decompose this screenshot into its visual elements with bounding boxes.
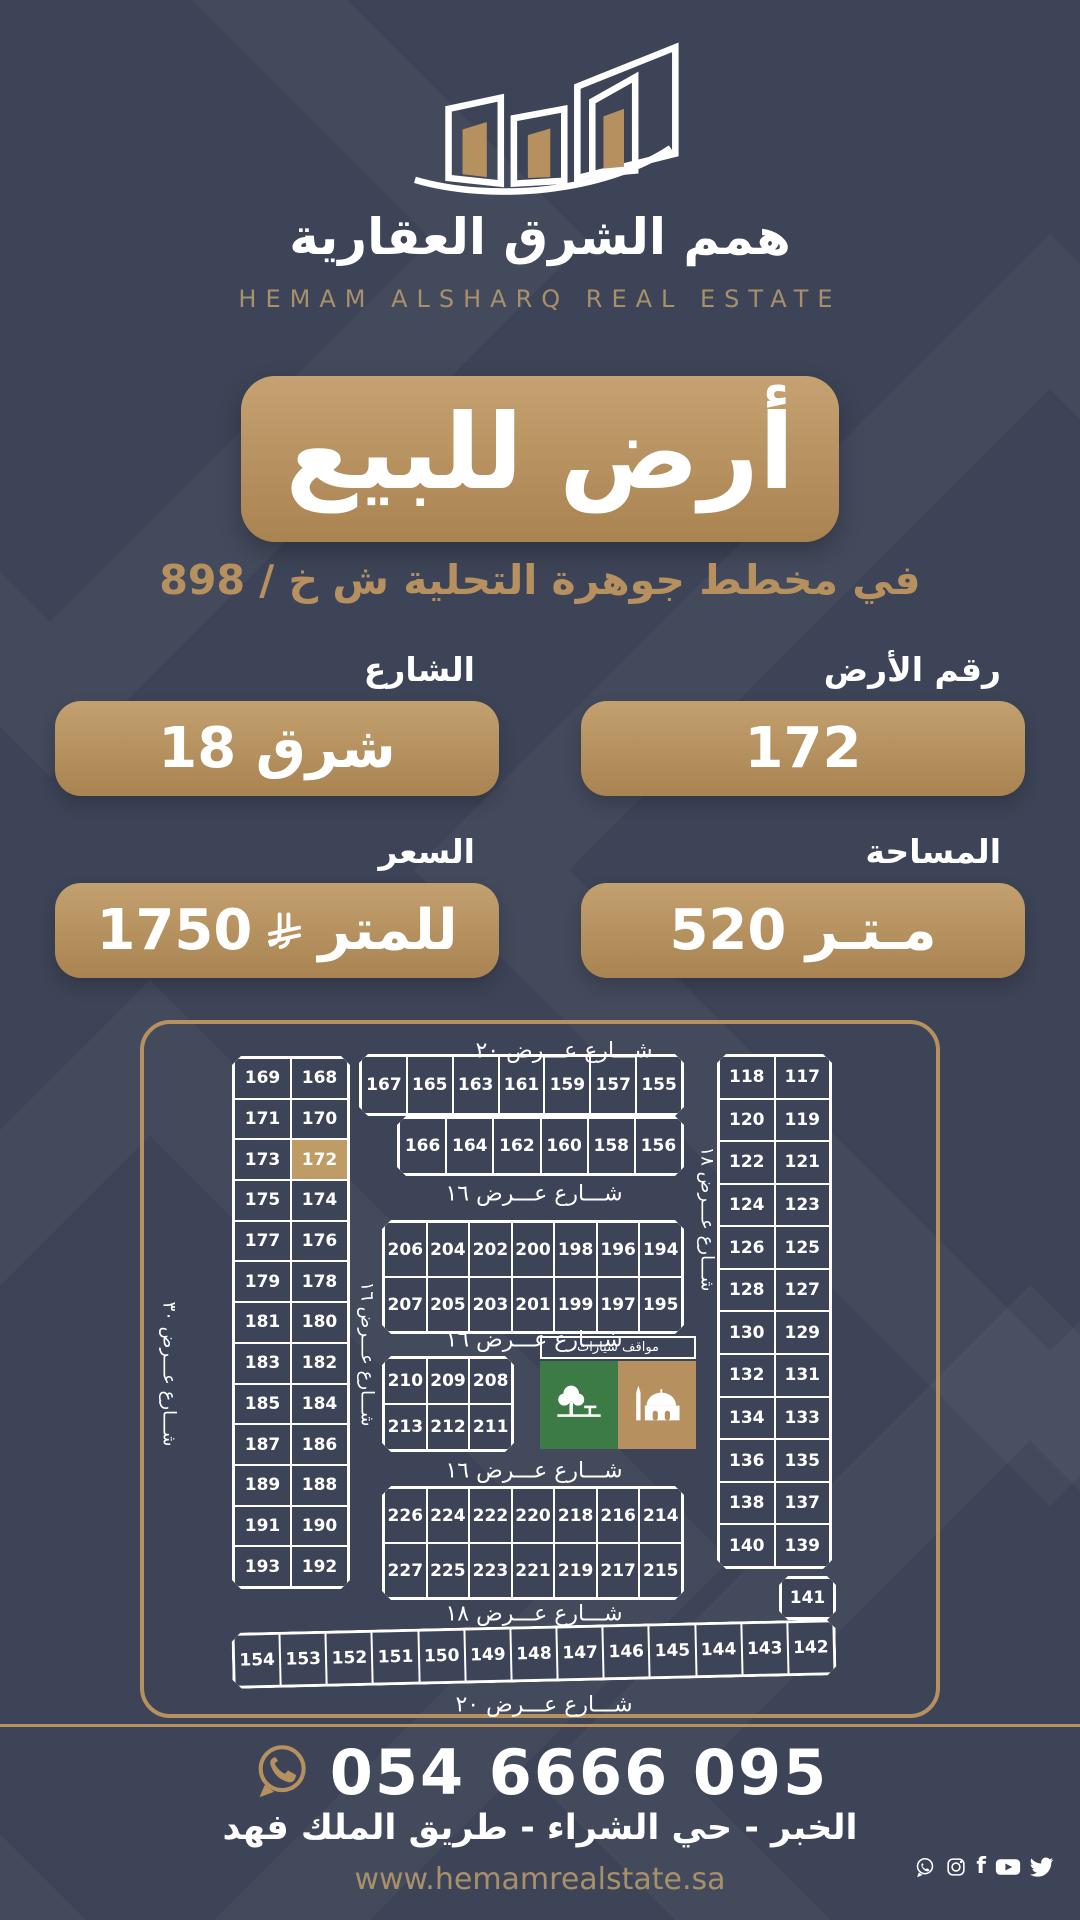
plot-141: 141 [782,1579,833,1617]
area-value: 520 مـتـر [581,883,1025,978]
plot-201: 201 [513,1278,554,1331]
plot-193: 193 [235,1547,290,1586]
plot-map: مواقف سيارات [140,1020,940,1718]
plot-185: 185 [235,1385,290,1424]
mosque-area [618,1361,696,1449]
plot-220: 220 [513,1489,554,1542]
facebook-icon[interactable]: f [976,1856,986,1878]
plot-133: 133 [776,1398,830,1439]
plot-121: 121 [776,1142,830,1183]
plot-200: 200 [513,1223,554,1276]
street-label: الشارع [55,650,499,689]
plot-126: 126 [720,1227,774,1268]
area-label: المساحة [581,832,1025,871]
plot-171: 171 [235,1100,290,1139]
plot-184: 184 [292,1385,347,1424]
plot-176: 176 [292,1222,347,1261]
social-icons: f [914,1856,1054,1878]
plot-187: 187 [235,1425,290,1464]
plot-219: 219 [555,1544,596,1597]
plot-218: 218 [555,1489,596,1542]
plot-173: 173 [235,1140,290,1179]
plot-170: 170 [292,1100,347,1139]
plot-214: 214 [640,1489,681,1542]
block-210s: 210209208213212211 [382,1356,514,1452]
phone-number: 054 6666 095 [330,1736,829,1809]
block-200s-north: 2062042022001981961942072052032011991971… [382,1220,684,1334]
info-fields: رقم الأرض 172 الشارع 18 شرق المساحة 520 … [55,650,1025,978]
field-street: الشارع 18 شرق [55,650,499,796]
plot-147: 147 [557,1627,602,1678]
block-south-row: 154153152151150149148147146145144143142 [231,1619,836,1689]
plot-158: 158 [589,1119,634,1173]
buildings-logo-icon [390,38,690,210]
price-value: 1750 للمتر [55,883,499,978]
plot-154: 154 [235,1635,280,1686]
plot-189: 189 [235,1466,290,1505]
plot-148: 148 [511,1629,556,1680]
plot-174: 174 [292,1181,347,1220]
plot-175: 175 [235,1181,290,1220]
plot-137: 137 [776,1483,830,1524]
gold-divider [0,1724,1080,1727]
plot-192: 192 [292,1547,347,1586]
plot-188: 188 [292,1466,347,1505]
youtube-icon[interactable] [995,1856,1021,1878]
plot-161: 161 [500,1057,544,1113]
plot-167: 167 [362,1057,406,1113]
field-land-number: رقم الأرض 172 [581,650,1025,796]
real-estate-poster: همم الشرق العقارية HEMAM ALSHARQ REAL ES… [0,0,1080,1920]
plot-199: 199 [555,1278,596,1331]
plot-169: 169 [235,1059,290,1098]
plot-134: 134 [720,1398,774,1439]
plot-226: 226 [385,1489,426,1542]
plot-191: 191 [235,1507,290,1546]
plot-144: 144 [696,1624,741,1675]
plot-138: 138 [720,1483,774,1524]
plot-164: 164 [447,1119,492,1173]
plot-162: 162 [494,1119,539,1173]
plan-subtitle: في مخطط جوهرة التحلية ش خ / 898 [0,556,1080,604]
block-top-row-b: 166164162160158156 [397,1116,684,1176]
plot-207: 207 [385,1278,426,1331]
plot-221: 221 [513,1544,554,1597]
for-sale-title: أرض للبيع [285,400,794,518]
plot-210: 210 [385,1359,426,1403]
plot-213: 213 [385,1405,426,1449]
plot-145: 145 [650,1625,695,1676]
phone-row[interactable]: 054 6666 095 [0,1736,1080,1809]
plot-215: 215 [640,1544,681,1597]
brand-name-arabic: همم الشرق العقارية [0,208,1080,266]
plot-153: 153 [281,1634,326,1685]
tree-icon [553,1381,605,1429]
plot-122: 122 [720,1142,774,1183]
plot-135: 135 [776,1440,830,1481]
saudi-riyal-symbol-icon [268,911,302,951]
plot-198: 198 [555,1223,596,1276]
street-width-label: شـــارع عـــرض ٣٠ [159,1302,180,1447]
plot-180: 180 [292,1303,347,1342]
street-width-label: شـــارع عـــرض ١٨ [445,1602,622,1627]
plot-212: 212 [428,1405,469,1449]
plot-165: 165 [408,1057,452,1113]
plot-194: 194 [640,1223,681,1276]
plot-196: 196 [598,1223,639,1276]
plot-179: 179 [235,1262,290,1301]
whatsapp-icon [252,1742,310,1804]
plot-163: 163 [454,1057,498,1113]
plot-202: 202 [470,1223,511,1276]
block-right-column: 1181171201191221211241231261251281271301… [717,1054,832,1569]
plot-127: 127 [776,1270,830,1311]
block-141: 141 [779,1576,836,1620]
plot-197: 197 [598,1278,639,1331]
plot-120: 120 [720,1100,774,1141]
for-sale-banner: أرض للبيع [241,376,839,542]
plot-131: 131 [776,1355,830,1396]
plot-155: 155 [637,1057,681,1113]
field-price: السعر 1750 [55,832,499,978]
plot-216: 216 [598,1489,639,1542]
street-width-label: شـــارع عـــرض ٢٠ [455,1693,632,1718]
land-number-label: رقم الأرض [581,650,1025,689]
plot-227: 227 [385,1544,426,1597]
plot-142: 142 [788,1622,833,1673]
land-number-value: 172 [581,701,1025,796]
field-area: المساحة 520 مـتـر [581,832,1025,978]
plot-151: 151 [373,1632,418,1683]
plot-183: 183 [235,1344,290,1383]
plot-146: 146 [604,1626,649,1677]
plot-195: 195 [640,1278,681,1331]
plot-208: 208 [470,1359,511,1403]
plot-119: 119 [776,1100,830,1141]
plot-118: 118 [720,1057,774,1098]
price-label: السعر [55,832,499,871]
plot-209: 209 [428,1359,469,1403]
park-area [540,1361,618,1449]
plot-132: 132 [720,1355,774,1396]
plot-124: 124 [720,1185,774,1226]
mosque-icon [631,1381,683,1429]
whatsapp-social-icon[interactable] [914,1856,936,1878]
plot-203: 203 [470,1278,511,1331]
plot-204: 204 [428,1223,469,1276]
plot-225: 225 [428,1544,469,1597]
address-line: الخبر - حي الشراء - طريق الملك فهد [0,1808,1080,1848]
plot-160: 160 [542,1119,587,1173]
plot-205: 205 [428,1278,469,1331]
plot-223: 223 [470,1544,511,1597]
plot-159: 159 [545,1057,589,1113]
plot-117: 117 [776,1057,830,1098]
plot-168: 168 [292,1059,347,1098]
plot-156: 156 [636,1119,681,1173]
plot-map-canvas: مواقف سيارات [144,1024,936,1714]
plot-217: 217 [598,1544,639,1597]
plot-123: 123 [776,1185,830,1226]
plot-182: 182 [292,1344,347,1383]
street-width-label: شـــارع عـــرض ٢٠ [475,1039,652,1064]
plot-211: 211 [470,1405,511,1449]
plot-177: 177 [235,1222,290,1261]
plot-166: 166 [400,1119,445,1173]
plot-149: 149 [465,1630,510,1681]
plot-128: 128 [720,1270,774,1311]
twitter-icon[interactable] [1030,1856,1054,1878]
street-width-label: شـــارع عـــرض ١٨ [697,1147,718,1292]
plot-125: 125 [776,1227,830,1268]
plot-178: 178 [292,1262,347,1301]
plot-222: 222 [470,1489,511,1542]
plot-129: 129 [776,1312,830,1353]
plot-186: 186 [292,1425,347,1464]
plot-181: 181 [235,1303,290,1342]
plot-150: 150 [419,1631,464,1682]
plot-140: 140 [720,1525,774,1566]
brand-name-english: HEMAM ALSHARQ REAL ESTATE [0,285,1080,313]
plot-206: 206 [385,1223,426,1276]
street-width-label: شـــارع عـــرض ١٦ [445,1459,622,1484]
street-width-label: شـــارع عـــرض ١٦ [445,1182,622,1207]
plot-139: 139 [776,1525,830,1566]
plot-136: 136 [720,1440,774,1481]
plot-172: 172 [292,1140,347,1179]
block-left-column: 1691681711701731721751741771761791781811… [232,1056,350,1589]
instagram-icon[interactable] [945,1856,967,1878]
street-width-label: شـــارع عـــرض ١٦ [445,1328,622,1353]
plot-152: 152 [327,1633,372,1684]
street-value: 18 شرق [55,701,499,796]
plot-157: 157 [591,1057,635,1113]
plot-224: 224 [428,1489,469,1542]
plot-143: 143 [742,1623,787,1674]
street-width-label: شـــارع عـــرض ١٦ [357,1282,378,1427]
block-220s: 2262242222202182162142272252232212192172… [382,1486,684,1600]
plot-130: 130 [720,1312,774,1353]
plot-190: 190 [292,1507,347,1546]
